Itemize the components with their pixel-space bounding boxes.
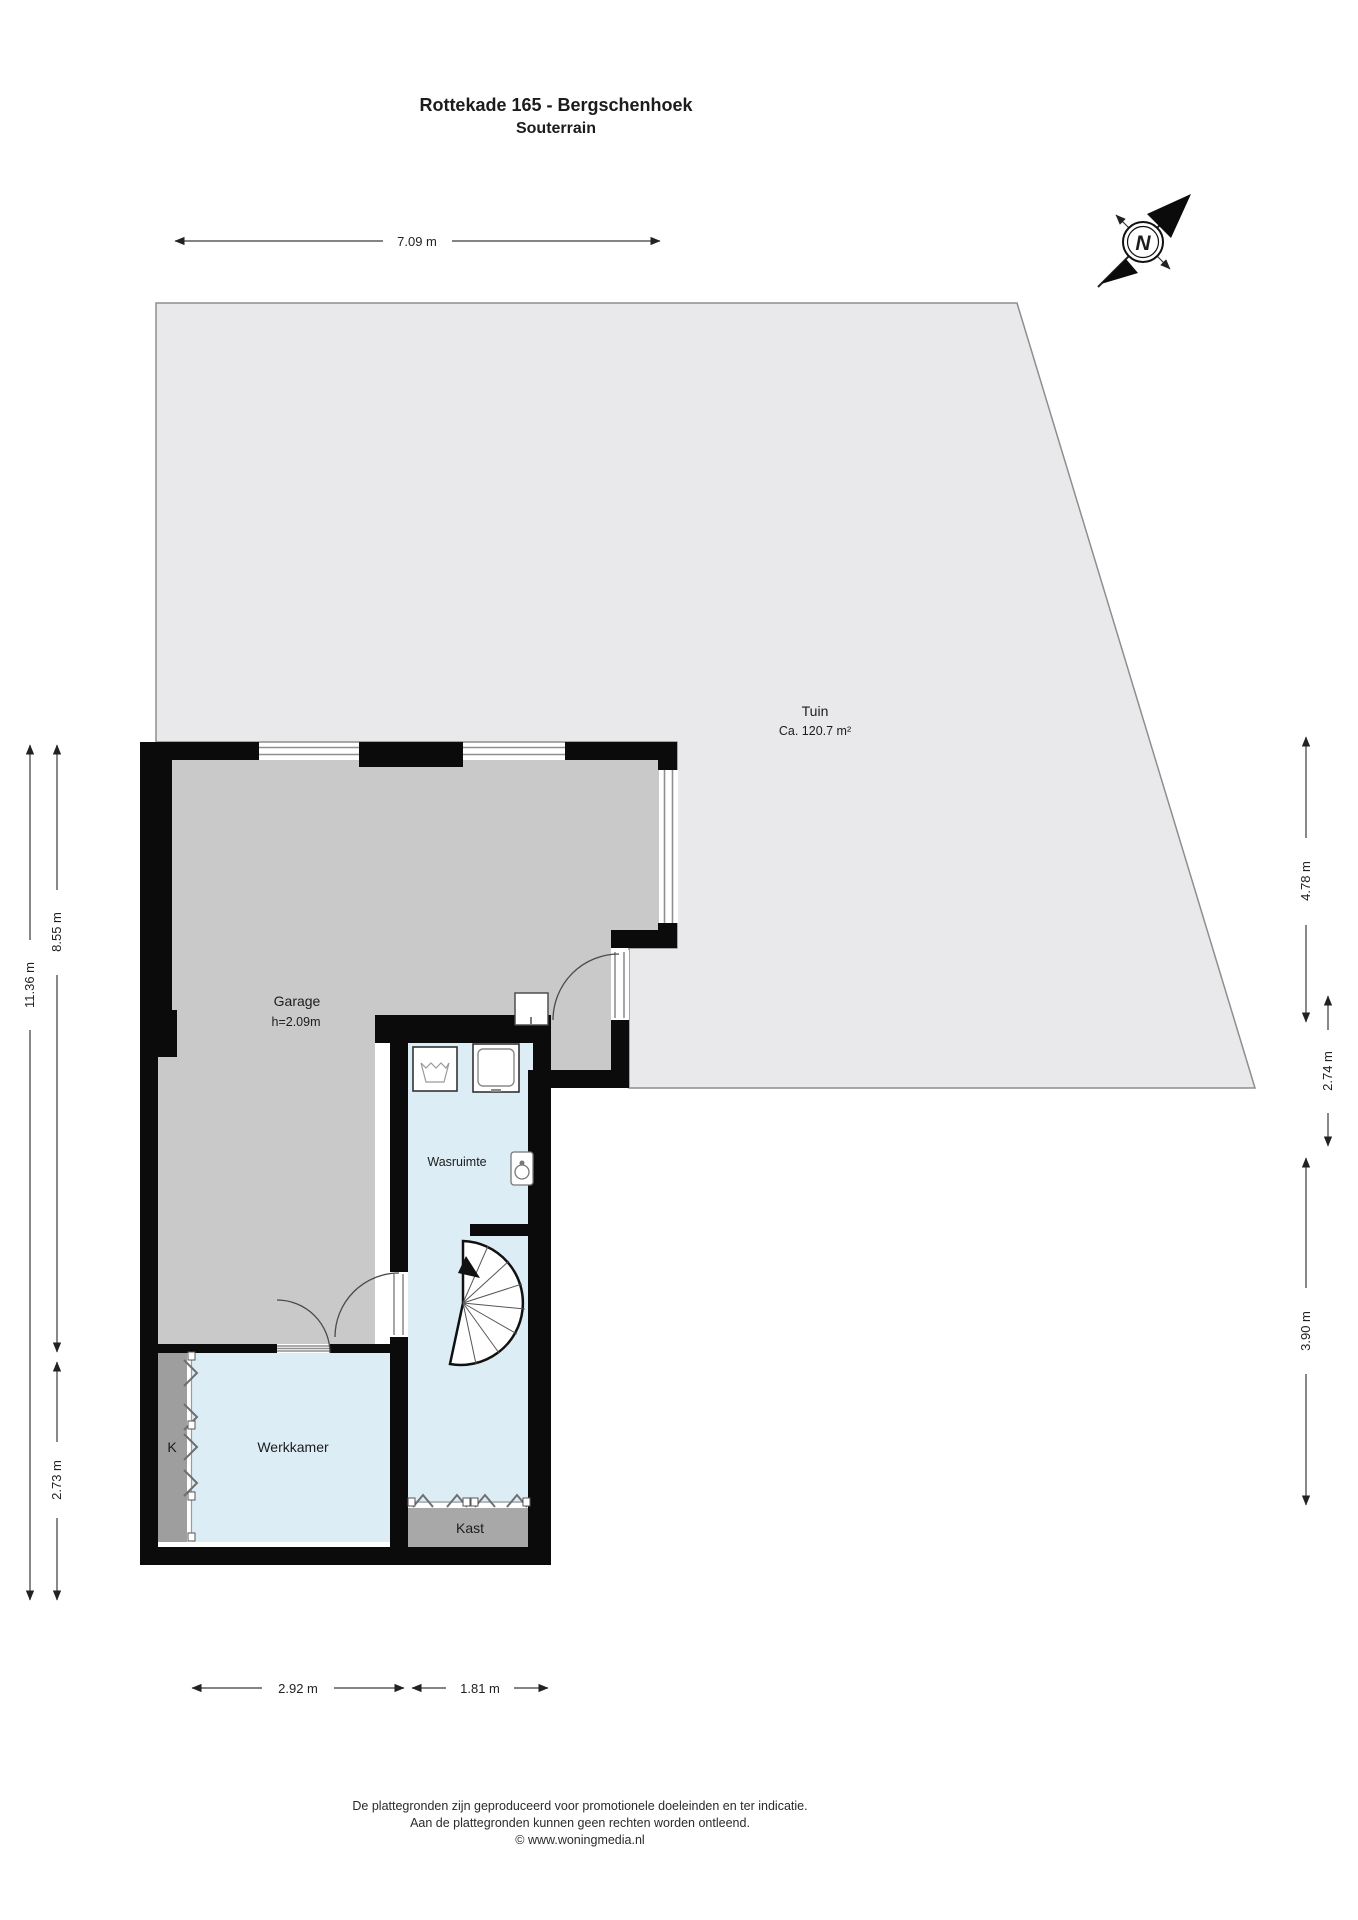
kast-label: Kast bbox=[456, 1520, 484, 1536]
wall-stair-left-upper bbox=[390, 1015, 408, 1272]
compass-rose: N bbox=[1098, 194, 1191, 287]
dimension-right-upper: 4.78 m bbox=[1298, 737, 1313, 1022]
dimension-left-total: 11.36 m bbox=[22, 745, 37, 1600]
svg-text:1.81 m: 1.81 m bbox=[460, 1681, 500, 1696]
dimension-left-lower: 2.73 m bbox=[49, 1362, 64, 1600]
wall-top-seg2 bbox=[359, 742, 463, 767]
svg-text:7.09 m: 7.09 m bbox=[397, 234, 437, 249]
dimension-bottom-right: 1.81 m bbox=[412, 1681, 548, 1696]
svg-text:3.90 m: 3.90 m bbox=[1298, 1311, 1313, 1351]
garden-label: Tuin bbox=[802, 703, 829, 719]
svg-text:4.78 m: 4.78 m bbox=[1298, 861, 1313, 901]
window-top-1 bbox=[259, 743, 359, 759]
plan-title: Rottekade 165 - Bergschenhoek Souterrain bbox=[419, 95, 693, 137]
window-right bbox=[659, 770, 678, 923]
building-floors bbox=[158, 760, 660, 1547]
wall-right-step bbox=[611, 930, 677, 948]
svg-text:8.55 m: 8.55 m bbox=[49, 912, 64, 952]
wall-wasruimte-stub bbox=[470, 1224, 528, 1236]
footer-line-2: Aan de plattegronden kunnen geen rechten… bbox=[410, 1816, 750, 1830]
floorplan-page: Rottekade 165 - Bergschenhoek Souterrain… bbox=[0, 0, 1358, 1920]
window-top-2 bbox=[463, 743, 565, 759]
closet-k-label: K bbox=[167, 1439, 177, 1455]
wall-left-lower bbox=[140, 1057, 158, 1565]
dryer-icon bbox=[473, 1044, 519, 1092]
dimension-right-lower: 3.90 m bbox=[1298, 1158, 1313, 1505]
wall-right-lower bbox=[528, 1070, 551, 1565]
floorplan-canvas: Rottekade 165 - Bergschenhoek Souterrain… bbox=[0, 0, 1358, 1920]
compass-north-label: N bbox=[1135, 232, 1151, 255]
garage-height-label: h=2.09m bbox=[272, 1015, 321, 1029]
plan-title-floor: Souterrain bbox=[516, 120, 596, 137]
wall-stair-left-lower bbox=[390, 1337, 408, 1547]
laundry-sink-icon bbox=[413, 1047, 457, 1091]
wall-left-step bbox=[140, 1010, 177, 1057]
svg-text:2.92 m: 2.92 m bbox=[278, 1681, 318, 1696]
cv-unit-icon bbox=[515, 993, 548, 1025]
werkkamer-label: Werkkamer bbox=[257, 1439, 329, 1455]
wall-bottom bbox=[140, 1547, 551, 1565]
dimension-top-width: 7.09 m bbox=[175, 234, 660, 249]
wall-right-corner bbox=[658, 742, 677, 770]
dimension-left-upper: 8.55 m bbox=[49, 745, 64, 1352]
dimension-bottom-left: 2.92 m bbox=[192, 1681, 404, 1696]
wasruimte-label: Wasruimte bbox=[427, 1155, 486, 1169]
footer-copyright: © www.woningmedia.nl bbox=[515, 1833, 644, 1847]
plan-title-address: Rottekade 165 - Bergschenhoek bbox=[419, 95, 693, 115]
dimension-right-middle: 2.74 m bbox=[1320, 996, 1335, 1146]
wall-left-upper bbox=[140, 742, 172, 1057]
svg-text:2.74 m: 2.74 m bbox=[1320, 1051, 1335, 1091]
boiler-icon bbox=[511, 1152, 533, 1185]
footer-line-1: De plattegronden zijn geproduceerd voor … bbox=[352, 1799, 807, 1813]
wall-top-seg1 bbox=[140, 742, 259, 760]
garage-label: Garage bbox=[274, 993, 321, 1009]
garden-area-label: Ca. 120.7 m² bbox=[779, 724, 851, 738]
footer-disclaimer: De plattegronden zijn geproduceerd voor … bbox=[352, 1799, 807, 1847]
svg-text:2.73 m: 2.73 m bbox=[49, 1460, 64, 1500]
compass-south-arrow bbox=[1101, 259, 1138, 284]
svg-text:11.36 m: 11.36 m bbox=[22, 962, 37, 1008]
